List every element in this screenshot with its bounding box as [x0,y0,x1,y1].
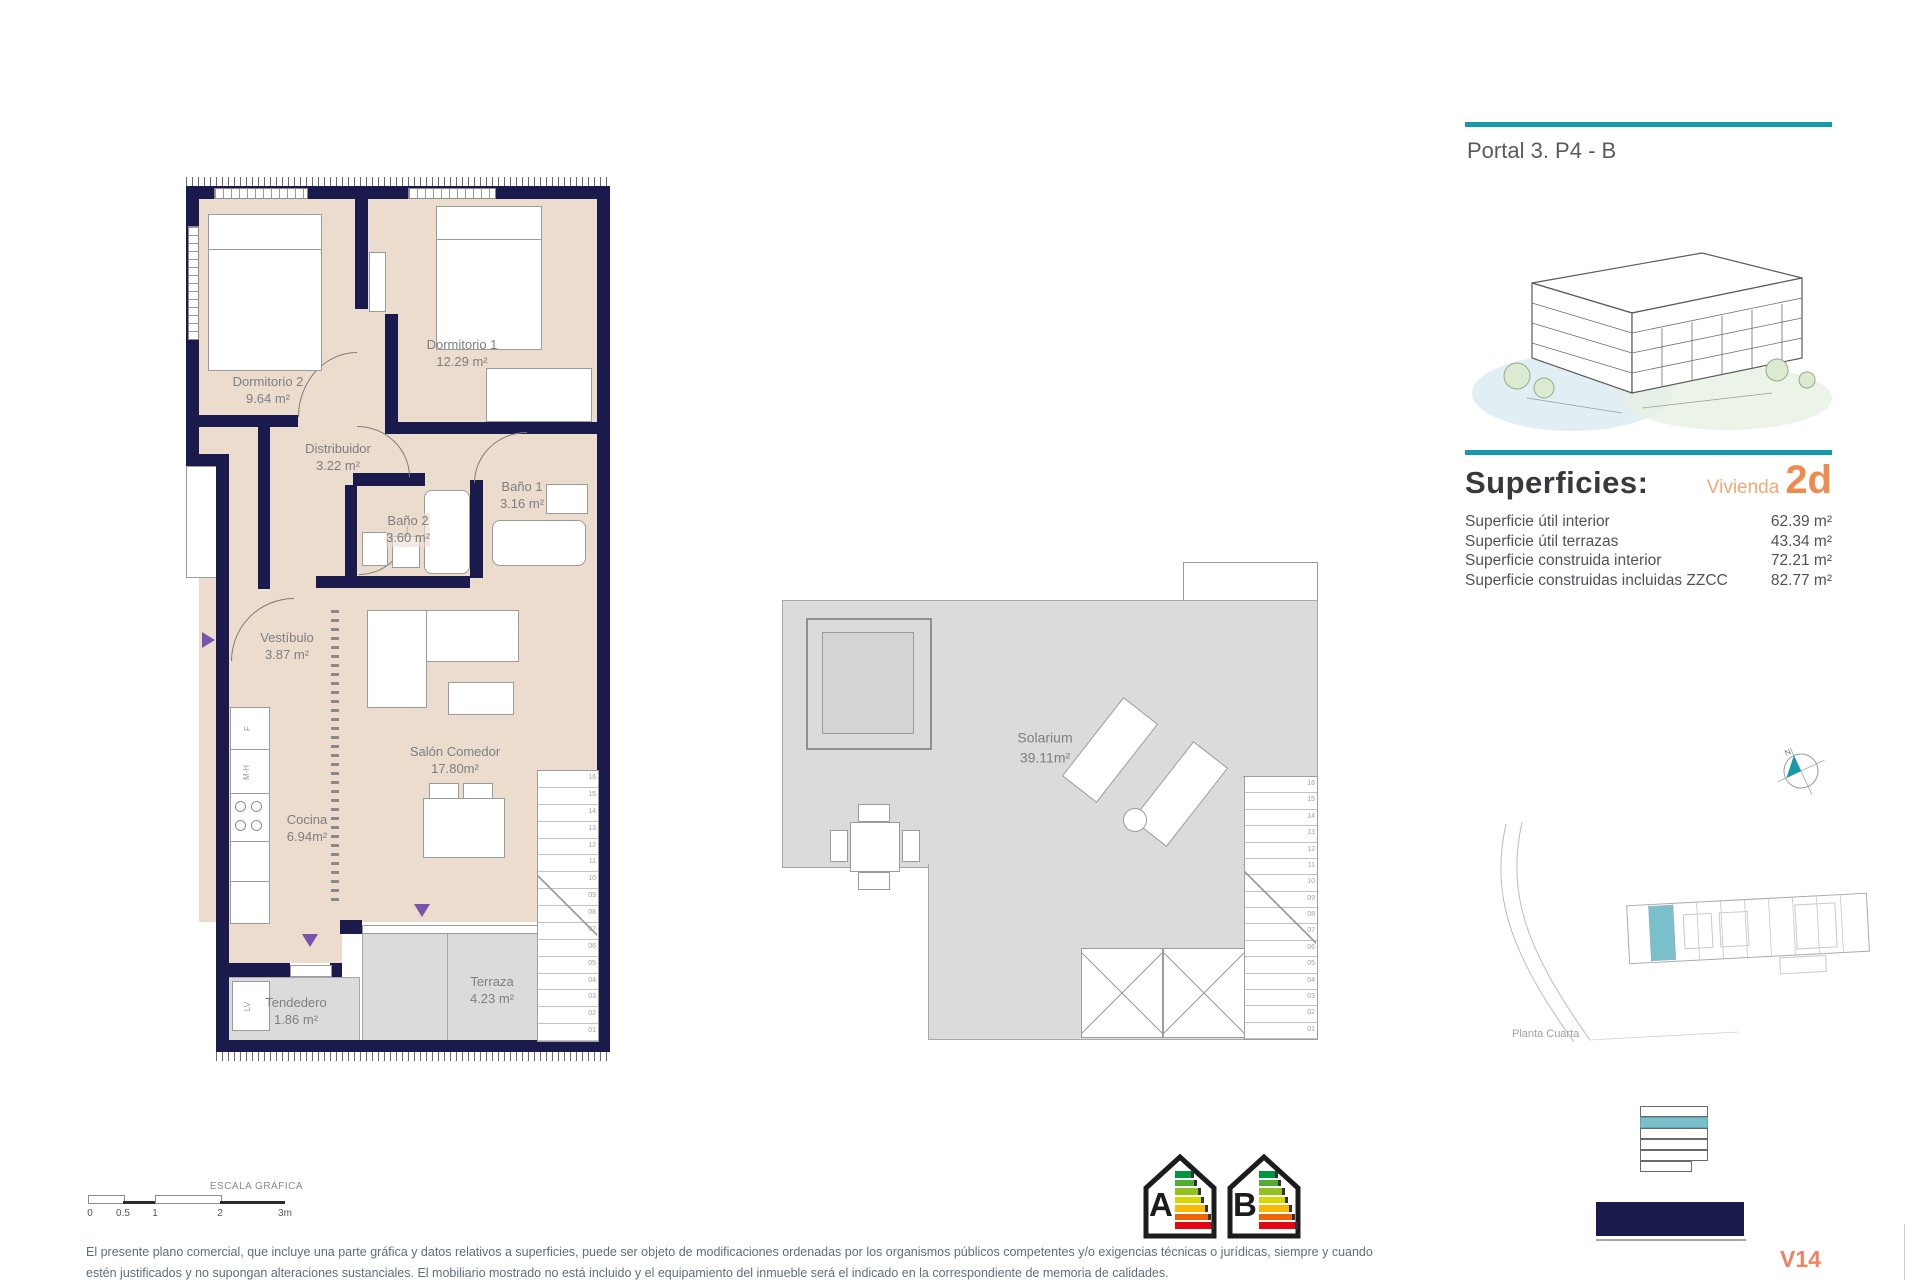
teal-rule [1465,450,1832,455]
room-name: Cocina [287,812,327,829]
row-value: 82.77 m² [1771,571,1832,591]
hob-burner-icon [235,820,246,831]
energy-letter: B [1233,1188,1257,1221]
room-area: 12.29 m² [427,354,498,371]
disclaimer: El presente plano comercial, que incluye… [86,1242,1431,1284]
room-area: 9.64 m² [233,391,304,408]
row-label: Superficie útil interior [1465,512,1610,532]
room-area: 3.22 m² [305,458,371,475]
access-arrow-icon [414,904,430,917]
chair-icon [902,830,920,862]
room-area: 6.94m² [287,829,327,846]
scale-segment [220,1201,285,1204]
roof-notch [1183,562,1318,604]
scale-segment [88,1195,125,1204]
room-name: Tendedero [265,995,326,1012]
solarium-label: Solarium39.11m² [1017,728,1072,767]
washbasin-icon [546,484,588,514]
superficies-row: Superficie útil interior62.39 m² [1465,512,1832,532]
energy-bars [1259,1171,1298,1229]
room-name: Baño 1 [500,479,544,496]
scale-bar-title: ESCALA GRÁFICA [210,1181,303,1192]
scale-tick: 0.5 [116,1208,130,1219]
diagonal-line [537,770,597,1040]
pergola-inner [822,632,914,734]
kitchen-sink-icon [230,841,270,883]
chair-icon [830,830,848,862]
energy-bar [1175,1197,1204,1204]
page-edge-line [1904,1224,1905,1280]
fridge-icon: F [230,707,270,751]
energy-bar [1175,1171,1194,1178]
cross-line [1082,949,1162,1037]
table-icon [850,822,900,872]
lightwell [186,466,218,578]
row-value: 62.39 m² [1771,512,1832,532]
room-area: 39.11m² [1017,748,1072,768]
scale-segment [155,1195,222,1204]
energy-bar [1175,1188,1201,1195]
floor-kitchen-strip [229,922,342,963]
room-area: 3.60 m² [386,530,430,547]
energy-bar [1175,1214,1211,1221]
bathtub-icon [492,520,586,566]
row-value: 72.21 m² [1771,551,1832,571]
wall [258,427,270,589]
room-area: 3.16 m² [500,496,544,513]
room-label-distribuidor: Distribuidor3.22 m² [305,441,371,475]
wall [355,199,368,309]
superficies-row: Superficie construidas incluidas ZZCC82.… [1465,571,1832,591]
site-plan [1478,818,1908,1048]
energy-bar [1259,1205,1292,1212]
energy-letter: A [1149,1188,1173,1221]
washer-label: LV [243,1002,252,1011]
superficies-row: Superficie construida interior72.21 m² [1465,551,1832,571]
room-label-terraza: Terraza4.23 m² [470,974,514,1008]
pillow-icon [209,215,321,250]
highlighted-unit [1649,905,1676,960]
site-plan-caption: Planta Cuarta [1512,1028,1579,1040]
scale-tick: 0 [87,1208,93,1219]
fridge-label: F [243,726,252,731]
hob-icon [230,793,270,843]
hob-burner-icon [251,820,262,831]
energy-bar [1175,1222,1214,1229]
window [188,226,199,340]
hob-burner-icon [251,801,262,812]
scale-segment [123,1201,155,1204]
floor-bar [1640,1128,1708,1139]
facade-hatch [186,177,610,186]
disclaimer-line1: El presente plano comercial, que incluye… [86,1242,1431,1263]
oven-label: M-H [242,765,251,780]
vivienda-label: Vivienda [1707,477,1780,498]
energy-bar [1175,1180,1197,1187]
wall [228,963,290,977]
door-leaf [290,965,332,977]
closet-icon [369,252,386,312]
room-label-salon: Salón Comedor17.80m² [410,744,500,778]
room-name: Solarium [1017,728,1072,748]
floor-bar [1640,1139,1708,1150]
scale-tick: 2 [217,1208,223,1219]
diagonal-line [1244,776,1316,1038]
pillow-icon [437,207,541,240]
wall [186,415,298,427]
superficies-header: Superficies: Vivienda2d [1465,458,1832,503]
room-name: Dormitorio 2 [233,374,304,391]
wall [186,454,229,466]
room-area: 3.87 m² [260,647,314,664]
ground-line [1596,1239,1746,1241]
cross-line [1164,949,1244,1037]
room-label-vestibulo: Vestíbulo3.87 m² [260,630,314,664]
room-label-banyo2: Baño 23.60 m² [386,513,430,547]
room-label-dormitorio2: Dormitorio 29.64 m² [233,374,304,408]
skylight-icon [1081,948,1163,1038]
room-name: Distribuidor [305,441,371,458]
superficies-title: Superficies: [1465,465,1648,501]
room-label-cocina: Cocina6.94m² [287,812,327,846]
side-table-icon [1123,808,1147,832]
chair-icon [858,872,890,890]
floor-patch [929,863,1243,866]
floor-bar [1640,1161,1692,1172]
wall [385,422,610,434]
room-area: 17.80m² [410,761,500,778]
toilet-icon [362,532,388,566]
superficies-block: Superficies: Vivienda2d Superficie útil … [1465,458,1832,590]
terraza-divider-line [447,933,448,1040]
stairs-cut-line [1244,776,1316,1038]
room-area: 1.86 m² [265,1012,326,1029]
room-area: 4.23 m² [470,991,514,1008]
wall [470,480,483,578]
portal-title: Portal 3. P4 - B [1467,138,1616,164]
energy-bar [1259,1188,1285,1195]
scale-tick: 1 [152,1208,158,1219]
teal-rule [1465,122,1832,127]
energy-bars [1175,1171,1214,1229]
room-label-tendedero: Tendedero1.86 m² [265,995,326,1029]
building-section [1596,1106,1746,1256]
kitchen-counter-icon [230,881,270,924]
building-sketch [1472,198,1832,443]
stairs-cut-line [537,770,597,1040]
row-value: 43.34 m² [1771,532,1832,552]
room-label-dormitorio1: Dormitorio 112.29 m² [427,337,498,371]
room-name: Terraza [470,974,514,991]
shower-icon [424,490,470,574]
plan-sheet: { "header": { "portal": "Portal 3. P4 - … [0,0,1920,1280]
bed-icon [436,206,542,350]
compass-icon: N [1772,742,1830,800]
blind-strip-icon [331,610,339,905]
access-arrow-icon [302,934,318,947]
scale-bar: ESCALA GRÁFICA 0 0.5 1 2 3m [88,1181,303,1225]
vivienda-tag: Vivienda2d [1707,458,1832,503]
solarium-plan: 16151413121110090807060504030201 Solariu… [778,560,1326,1060]
energy-bar [1175,1205,1208,1212]
bed-icon [208,214,322,371]
wardrobe-icon [486,368,592,422]
facade-hatch [216,1052,610,1061]
entrance-arrow-icon [202,632,215,648]
disclaimer-line2: estén justificados y no supongan alterac… [86,1263,1431,1284]
terraza-window [362,925,539,934]
energy-bar [1259,1197,1288,1204]
row-label: Superficie construida interior [1465,551,1661,571]
sofa-chaise-icon [367,610,427,708]
hob-burner-icon [235,801,246,812]
apartment-floor-plan: F M-H LV 1615141312111009080706050403020… [186,186,610,1070]
wall [316,576,470,588]
energy-label-b: B [1222,1152,1308,1242]
room-label-banyo1: Baño 13.16 m² [500,479,544,513]
oven-icon: M-H [230,749,270,795]
floor-bar [1640,1106,1708,1117]
wall [340,920,362,934]
energy-bar [1259,1171,1278,1178]
floor-bar-highlighted [1640,1117,1708,1128]
svg-text:N: N [1783,747,1792,758]
wall [385,314,398,426]
section-plinth [1596,1202,1744,1236]
energy-label-a: A [1138,1152,1224,1242]
vivienda-code: 2d [1785,458,1832,502]
sheet-code: V14 [1780,1246,1821,1273]
window [408,188,496,199]
scale-tick: 3m [278,1208,292,1219]
room-name: Salón Comedor [410,744,500,761]
wall [345,485,357,576]
chair-icon [858,804,890,822]
superficies-table: Superficie útil interior62.39 m² Superfi… [1465,512,1832,590]
window [214,188,308,199]
dining-table-icon [423,798,505,858]
energy-bar [1259,1180,1281,1187]
room-name: Vestíbulo [260,630,314,647]
skylight-icon [1163,948,1245,1038]
energy-bar [1259,1222,1298,1229]
energy-bar [1259,1214,1295,1221]
row-label: Superficie construidas incluidas ZZCC [1465,571,1728,591]
superficies-row: Superficie útil terrazas43.34 m² [1465,532,1832,552]
row-label: Superficie útil terrazas [1465,532,1618,552]
room-name: Baño 2 [386,513,430,530]
room-name: Dormitorio 1 [427,337,498,354]
coffee-table-icon [448,682,514,715]
floor-bar [1640,1150,1708,1161]
